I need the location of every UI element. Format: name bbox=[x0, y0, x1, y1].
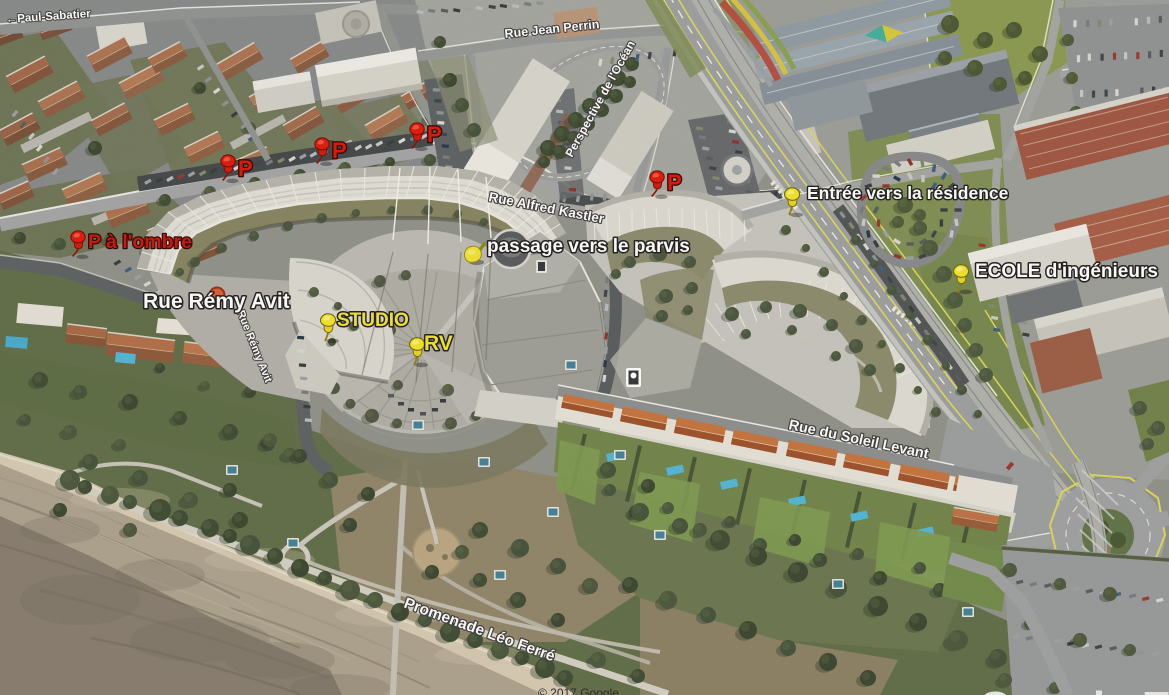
svg-text:© 2017 Google: © 2017 Google bbox=[538, 686, 619, 695]
svg-text:Google Ea: Google Ea bbox=[978, 683, 1169, 695]
